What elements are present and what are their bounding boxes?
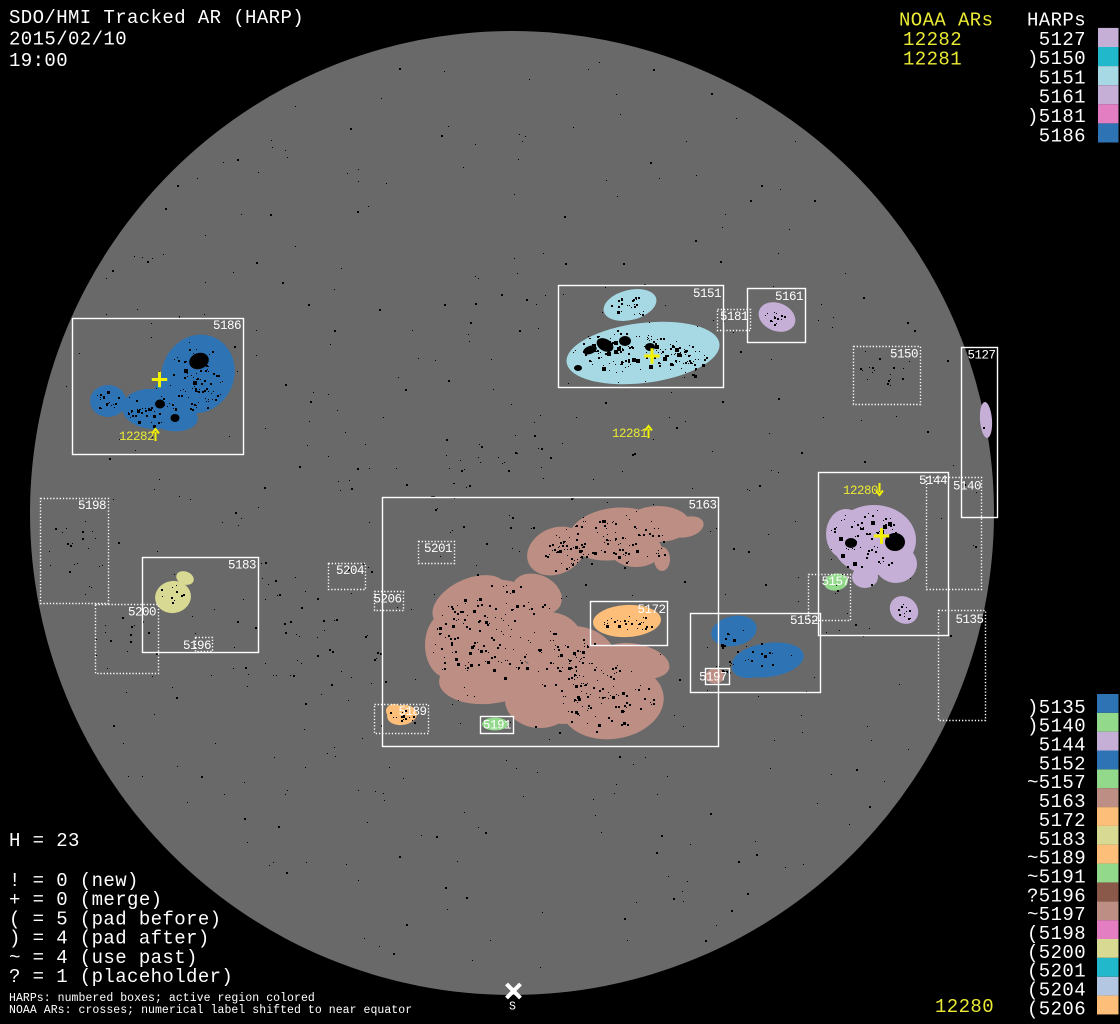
svg-text:5152: 5152: [790, 614, 818, 628]
svg-text:SDO/HMI Tracked AR (HARP): SDO/HMI Tracked AR (HARP): [9, 7, 304, 29]
svg-text:5189: 5189: [398, 705, 426, 719]
svg-text:5198: 5198: [78, 499, 106, 513]
svg-text:5161: 5161: [775, 290, 803, 304]
svg-text:H = 23: H = 23: [9, 830, 80, 852]
svg-text:5163: 5163: [688, 499, 716, 513]
svg-text:NOAA ARs: crosses; numerical l: NOAA ARs: crosses; numerical label shift…: [9, 1004, 412, 1017]
svg-text:12282: 12282: [119, 430, 154, 444]
svg-text:12280: 12280: [843, 484, 878, 498]
svg-text:5201: 5201: [424, 542, 452, 556]
svg-text:5204: 5204: [336, 564, 364, 578]
svg-text:12281: 12281: [612, 427, 647, 441]
svg-text:12281: 12281: [903, 49, 962, 71]
svg-text:5140: 5140: [953, 480, 981, 494]
svg-text:(5206: (5206: [1027, 998, 1086, 1020]
svg-text:5144: 5144: [919, 474, 947, 488]
svg-text:5186: 5186: [213, 319, 241, 333]
svg-text:5135: 5135: [955, 613, 983, 627]
svg-text:5191: 5191: [483, 719, 511, 733]
svg-text:5186: 5186: [1039, 125, 1086, 147]
svg-text:12280: 12280: [935, 996, 994, 1018]
svg-text:5157: 5157: [821, 575, 849, 589]
svg-text:5151: 5151: [693, 287, 721, 301]
svg-text:5206: 5206: [373, 592, 401, 606]
svg-text:? = 1 (placeholder): ? = 1 (placeholder): [9, 966, 233, 988]
svg-text:5183: 5183: [228, 559, 256, 573]
svg-text:5196: 5196: [183, 639, 211, 653]
svg-text:5172: 5172: [637, 603, 665, 617]
svg-text:5181: 5181: [720, 310, 748, 324]
svg-text:2015/02/10: 2015/02/10: [9, 29, 127, 51]
svg-text:S: S: [509, 1001, 516, 1014]
svg-text:5127: 5127: [967, 349, 995, 363]
svg-text:5150: 5150: [890, 348, 918, 362]
svg-text:5197: 5197: [699, 671, 727, 685]
svg-text:19:00: 19:00: [9, 50, 68, 72]
